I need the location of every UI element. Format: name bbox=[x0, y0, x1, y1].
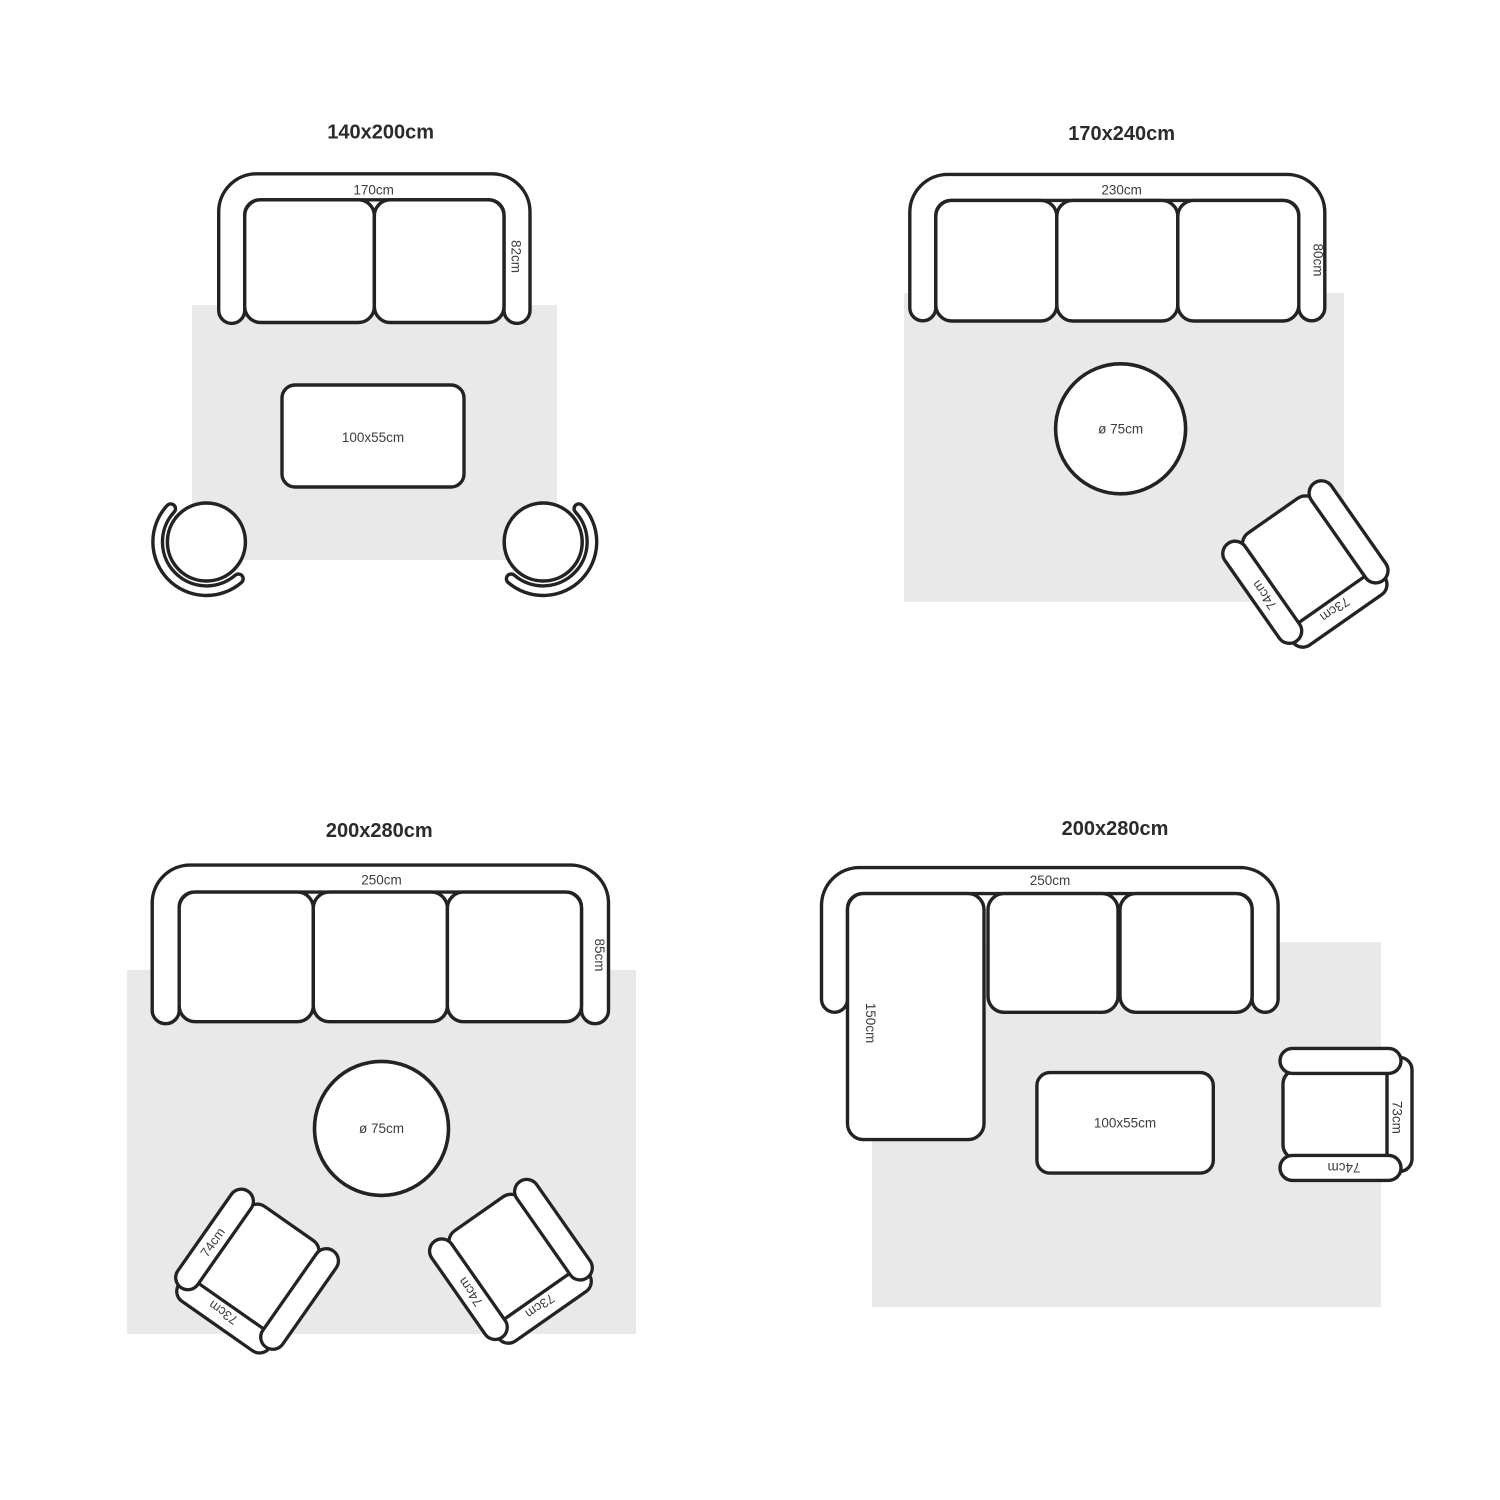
svg-text:230cm: 230cm bbox=[1101, 183, 1142, 198]
svg-text:80cm: 80cm bbox=[1311, 243, 1326, 276]
svg-text:100x55cm: 100x55cm bbox=[1094, 1115, 1156, 1130]
svg-text:73cm: 73cm bbox=[1390, 1101, 1405, 1134]
svg-text:82cm: 82cm bbox=[509, 240, 524, 273]
svg-text:150cm: 150cm bbox=[863, 1003, 878, 1044]
svg-text:ø 75cm: ø 75cm bbox=[359, 1121, 404, 1136]
svg-text:250cm: 250cm bbox=[1030, 873, 1071, 888]
svg-text:140x200cm: 140x200cm bbox=[327, 122, 434, 144]
svg-text:170x240cm: 170x240cm bbox=[1068, 123, 1175, 145]
svg-text:200x280cm: 200x280cm bbox=[1062, 818, 1169, 840]
svg-text:74cm: 74cm bbox=[1327, 1160, 1360, 1175]
svg-text:85cm: 85cm bbox=[592, 938, 607, 971]
svg-text:170cm: 170cm bbox=[353, 183, 394, 198]
svg-text:200x280cm: 200x280cm bbox=[326, 820, 433, 842]
svg-text:250cm: 250cm bbox=[361, 872, 402, 887]
svg-text:100x55cm: 100x55cm bbox=[342, 430, 404, 445]
svg-text:ø 75cm: ø 75cm bbox=[1098, 421, 1143, 436]
